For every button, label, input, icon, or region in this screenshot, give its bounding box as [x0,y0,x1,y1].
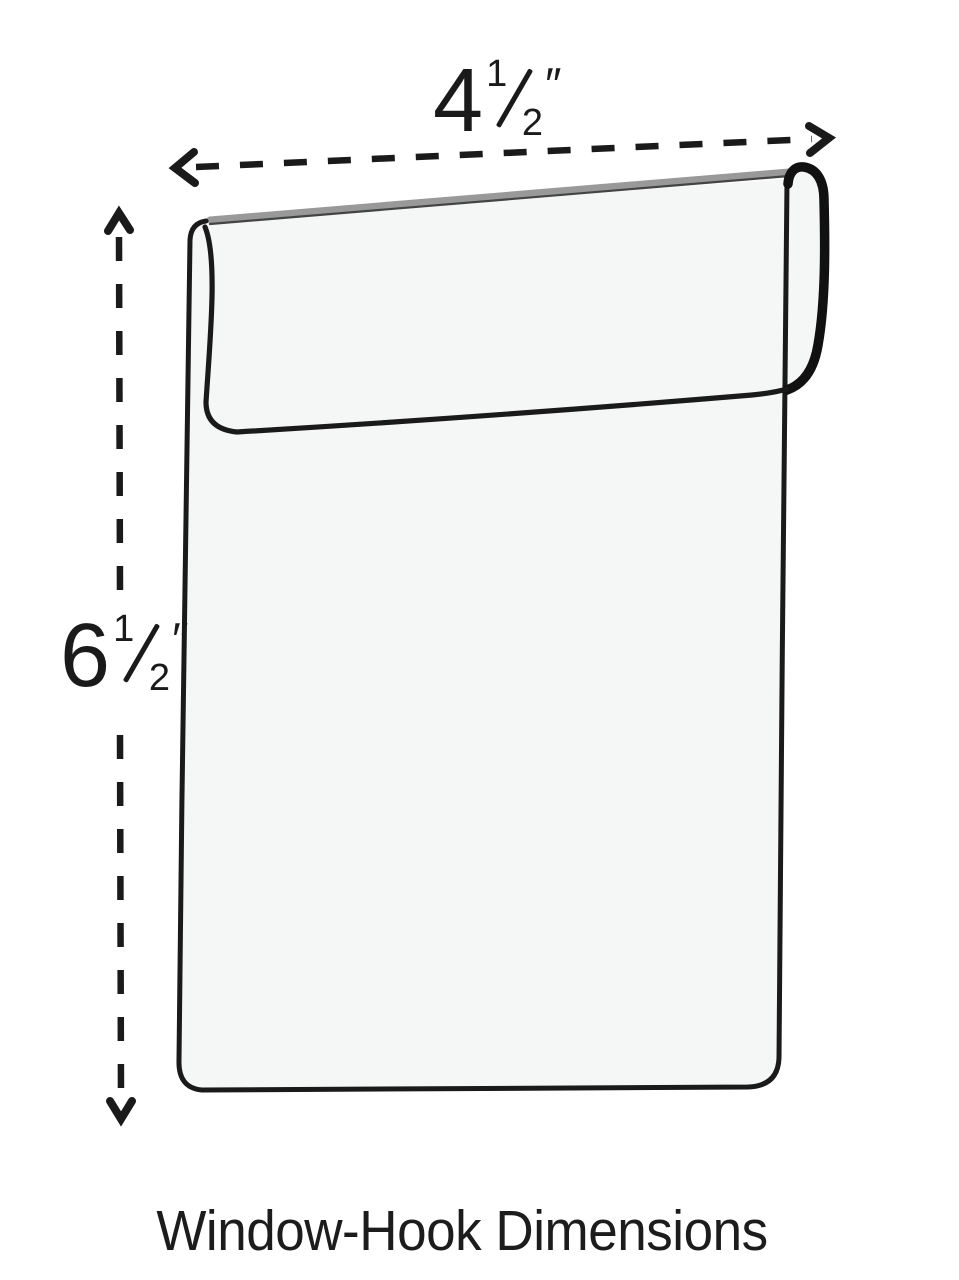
height-whole-number: 6 [60,613,110,699]
width-fraction-numerator: 1 [486,55,507,93]
height-fraction-denominator: 2 [149,659,170,697]
width-arrow-left-head [175,152,195,183]
width-fraction: 1 2 [486,58,544,142]
width-whole-number: 4 [433,58,483,144]
width-inches-mark: ″ [545,61,561,107]
width-dimension-label: 4 1 2 ″ [433,58,561,144]
diagram-caption: Window-Hook Dimensions [156,1198,767,1264]
holder-body-fill [179,167,825,1090]
diagram-canvas: 4 1 2 ″ 6 1 2 ″ Window-Hook Dimensions [0,0,959,1280]
height-arrow-top-head [108,213,130,231]
width-fraction-denominator: 2 [522,104,543,142]
height-arrow-bottom-head [110,1101,132,1119]
height-arrow-dashes-upper [119,237,120,594]
height-inches-mark: ″ [172,616,188,662]
height-fraction: 1 2 [113,613,171,697]
height-arrow-dashes-lower [120,735,121,1098]
height-dimension-label: 6 1 2 ″ [60,613,188,699]
height-fraction-numerator: 1 [113,610,134,648]
